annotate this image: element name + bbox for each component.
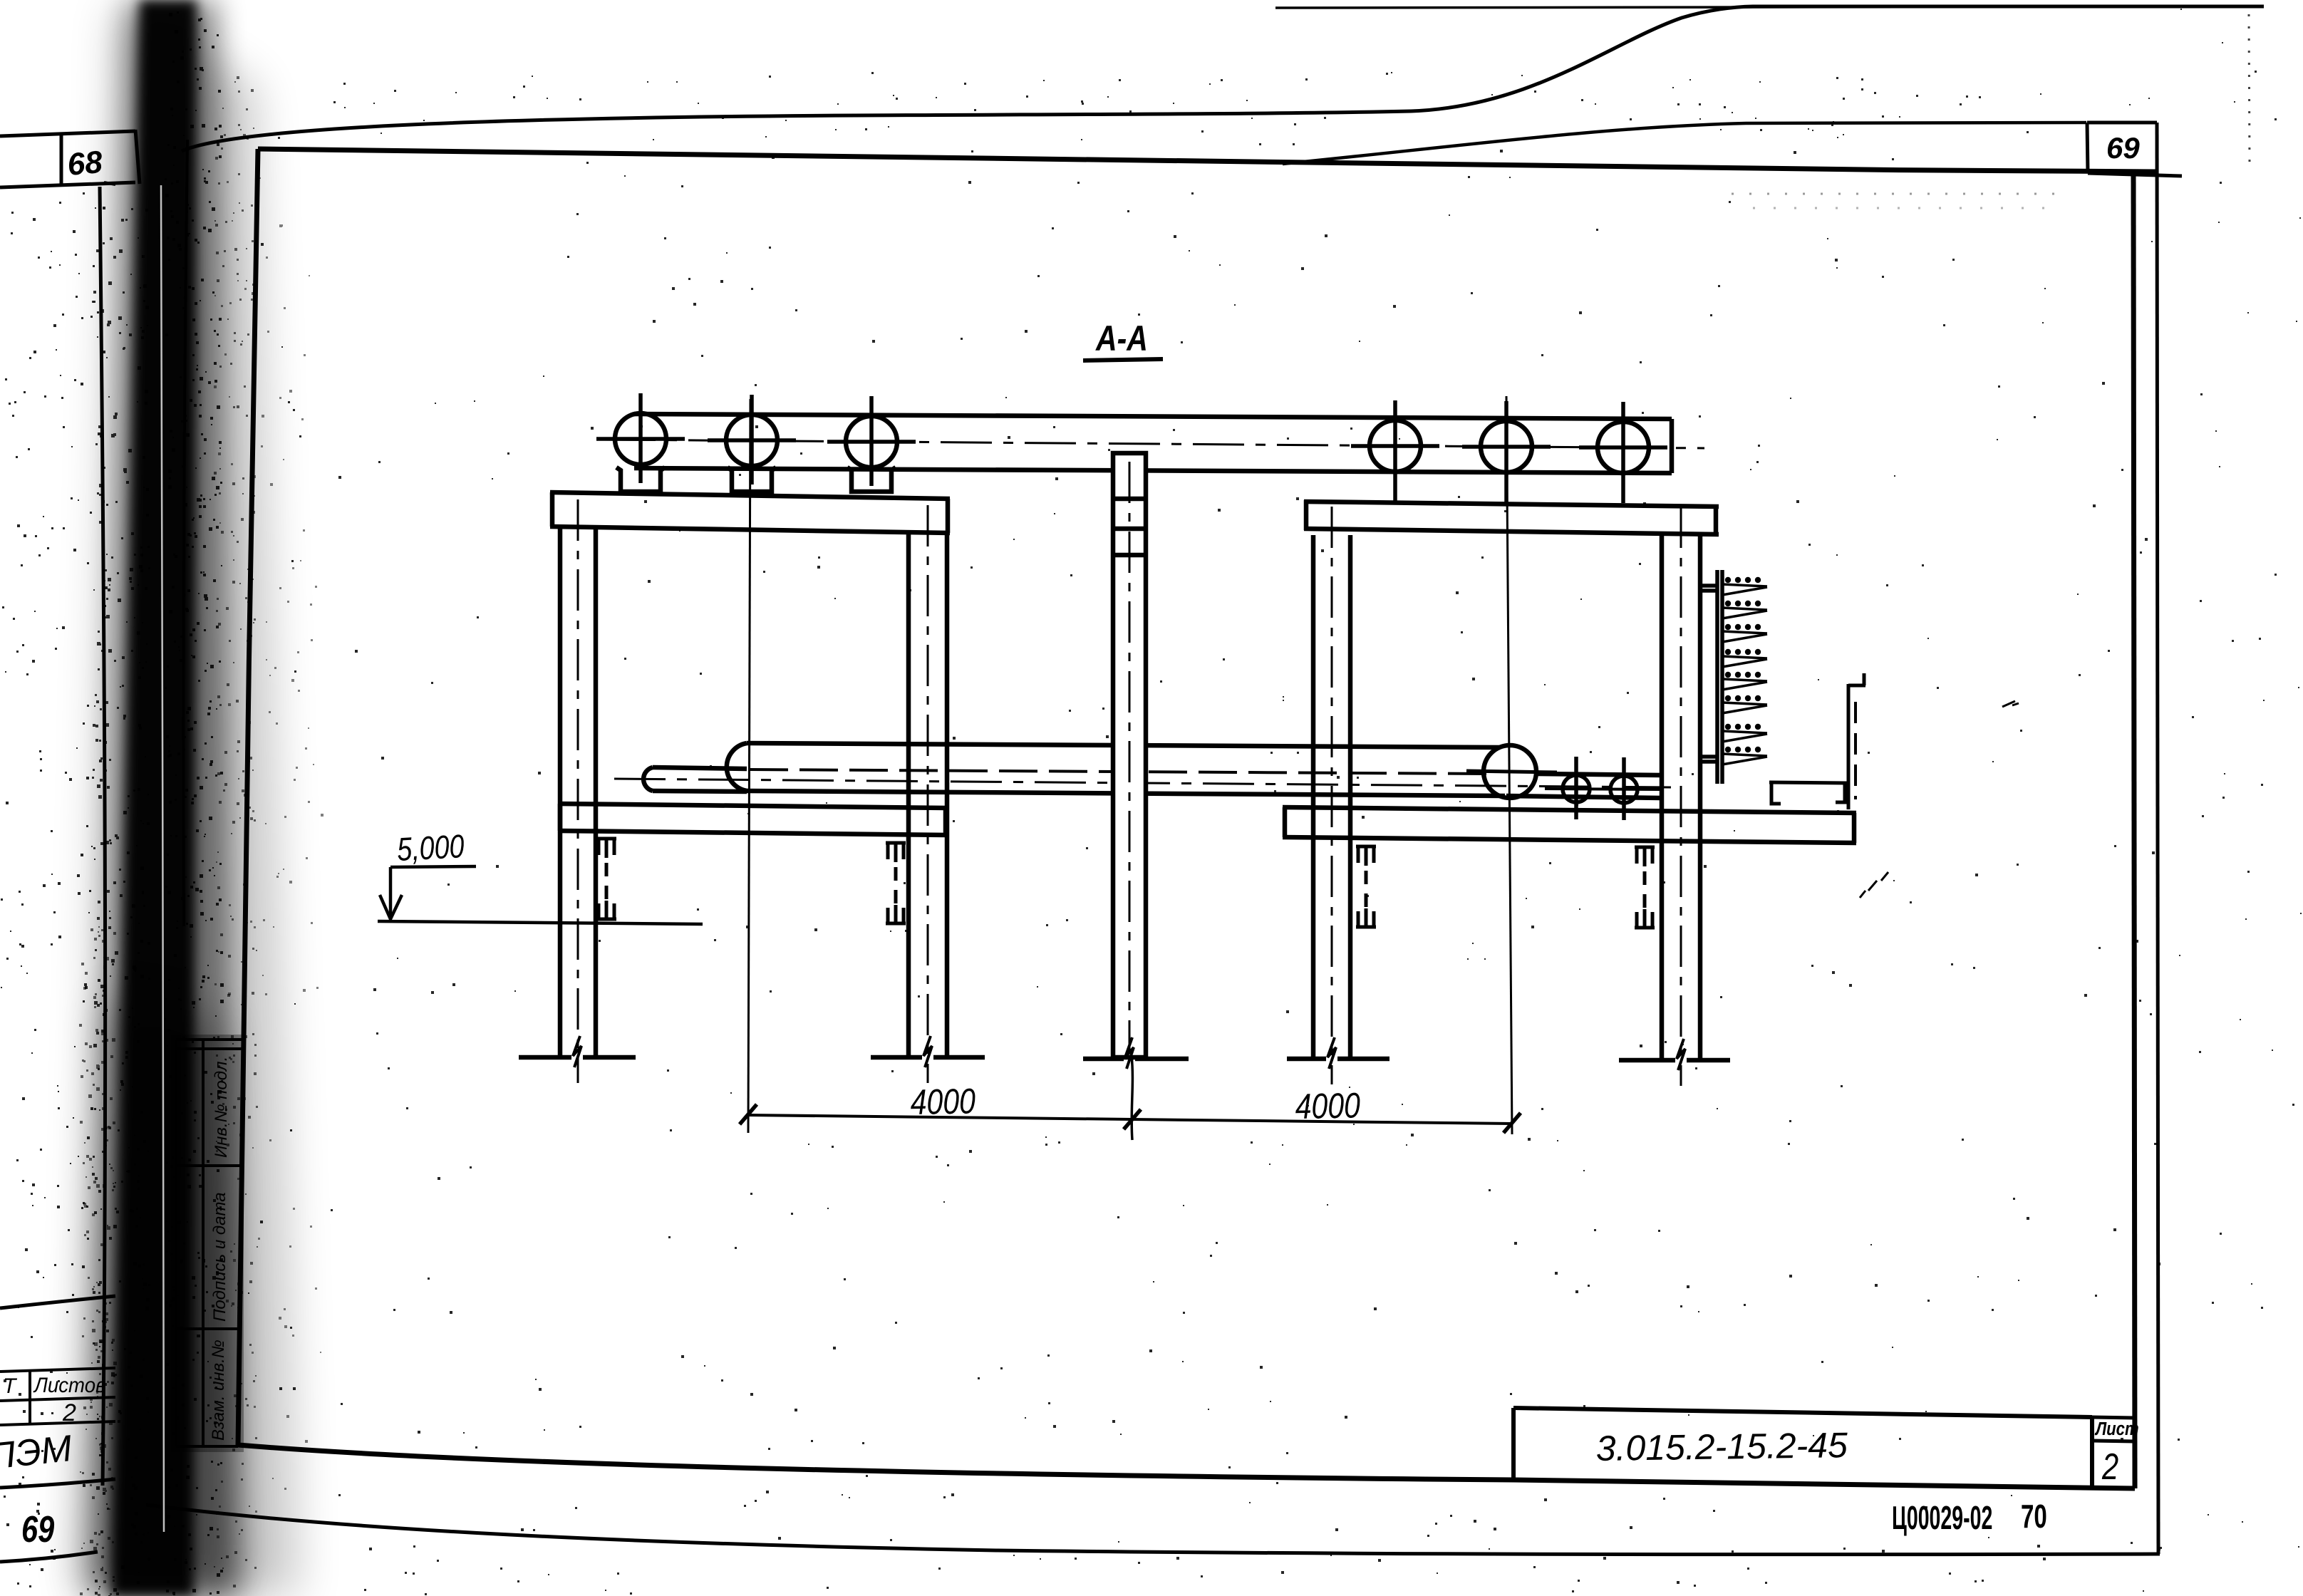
svg-text:Т: Т xyxy=(3,1374,18,1398)
svg-text:5,000: 5,000 xyxy=(396,828,465,868)
svg-text:Лист: Лист xyxy=(2094,1419,2138,1439)
svg-text:69: 69 xyxy=(2106,131,2140,165)
svg-text:69: 69 xyxy=(21,1508,54,1550)
svg-text:A-A: A-A xyxy=(1095,318,1148,358)
svg-text:2: 2 xyxy=(2101,1446,2118,1488)
svg-text:4000: 4000 xyxy=(1295,1086,1361,1126)
svg-text:4000: 4000 xyxy=(910,1082,976,1122)
svg-text:3.015.2-15.2-45: 3.015.2-15.2-45 xyxy=(1595,1425,1848,1468)
svg-text:2: 2 xyxy=(62,1399,76,1426)
svg-text:Ц00029-02: Ц00029-02 xyxy=(1892,1500,1992,1537)
svg-text:70: 70 xyxy=(2021,1499,2047,1535)
svg-text:68: 68 xyxy=(66,145,105,182)
